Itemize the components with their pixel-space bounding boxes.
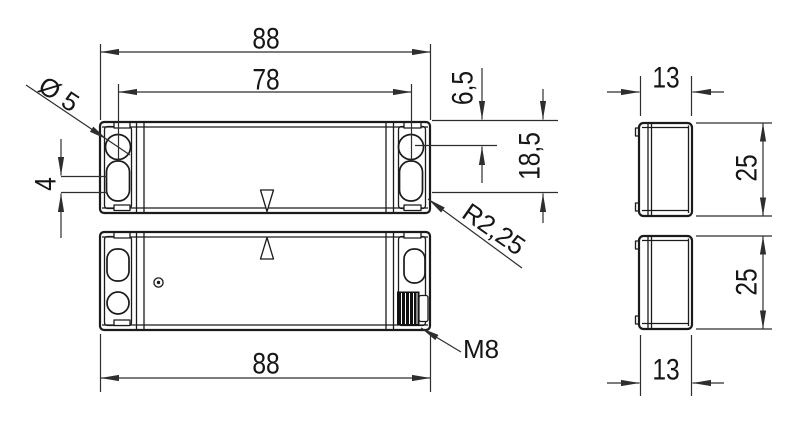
- label-connector-thread: M8: [463, 334, 499, 364]
- dim-label-depth-top: 13: [652, 60, 679, 94]
- label-slot-radius: R2,25: [457, 197, 531, 261]
- latch-notch: [114, 205, 130, 211]
- leader-m8-connector: M8: [421, 328, 499, 364]
- side-view-top: [636, 123, 693, 216]
- mounting-slot-left: [107, 249, 129, 281]
- drawing-canvas: 88 78 88 6,5 18,5 4 Ø 5 R2,25: [0, 0, 800, 421]
- dim-label-overall-width-bottom: 88: [252, 346, 279, 380]
- mounting-slot-right: [400, 161, 423, 201]
- dim-label-overall-width-top: 88: [252, 21, 279, 55]
- led-indicator-dot: [157, 281, 160, 284]
- side-top-inner-lines: [642, 124, 689, 216]
- alignment-mark-up: [261, 238, 274, 260]
- latch-notch: [114, 123, 130, 129]
- dimension-13-top: 13: [607, 60, 724, 116]
- dimension-13-bottom: 13: [607, 335, 724, 396]
- dim-label-edge-to-slot: 18,5: [512, 132, 546, 180]
- dim-label-height-bottom: 25: [729, 268, 763, 295]
- side-view-bottom: [636, 236, 693, 329]
- side-bottom-inner-lines: [642, 237, 689, 329]
- dimension-25-top: 25: [696, 123, 772, 216]
- dimension-25-bottom: 25: [696, 236, 772, 329]
- leader-slot-radius: R2,25: [428, 197, 531, 268]
- latch-notch: [114, 320, 130, 326]
- latch-notch: [404, 123, 421, 129]
- dim-label-depth-bottom: 13: [652, 352, 679, 386]
- dimension-4: 4: [28, 139, 107, 238]
- leader-hole-diameter: Ø 5: [26, 70, 130, 155]
- dimension-18-5: 18,5: [432, 89, 558, 223]
- side-top-outline: [639, 123, 692, 216]
- latch-notch: [404, 233, 421, 239]
- m8-knurled-nut: [398, 292, 420, 325]
- leader-line: [421, 328, 461, 352]
- m8-connector-body: [419, 296, 428, 322]
- dim-label-slot-length: 4: [28, 177, 62, 191]
- dim-label-edge-to-hole: 6,5: [445, 71, 479, 105]
- mounting-slot-right: [404, 249, 425, 283]
- dimension-88-bottom: 88: [101, 334, 431, 392]
- dim-label-hole-spacing: 78: [252, 62, 279, 96]
- dimension-78: 78: [119, 62, 412, 160]
- dimension-drawing-svg: 88 78 88 6,5 18,5 4 Ø 5 R2,25: [0, 0, 800, 421]
- latch-notch: [404, 205, 421, 211]
- m8-cable-connector: [398, 292, 429, 325]
- mounting-hole-left: [107, 292, 129, 314]
- mounting-slot-left: [107, 161, 130, 201]
- dim-label-height-top: 25: [729, 154, 763, 181]
- front-view-top-body: [100, 122, 430, 213]
- label-hole-diameter: Ø 5: [33, 70, 84, 118]
- front-view-bottom-body: [100, 232, 430, 330]
- side-bottom-outline: [639, 236, 692, 329]
- latch-notch: [114, 233, 130, 239]
